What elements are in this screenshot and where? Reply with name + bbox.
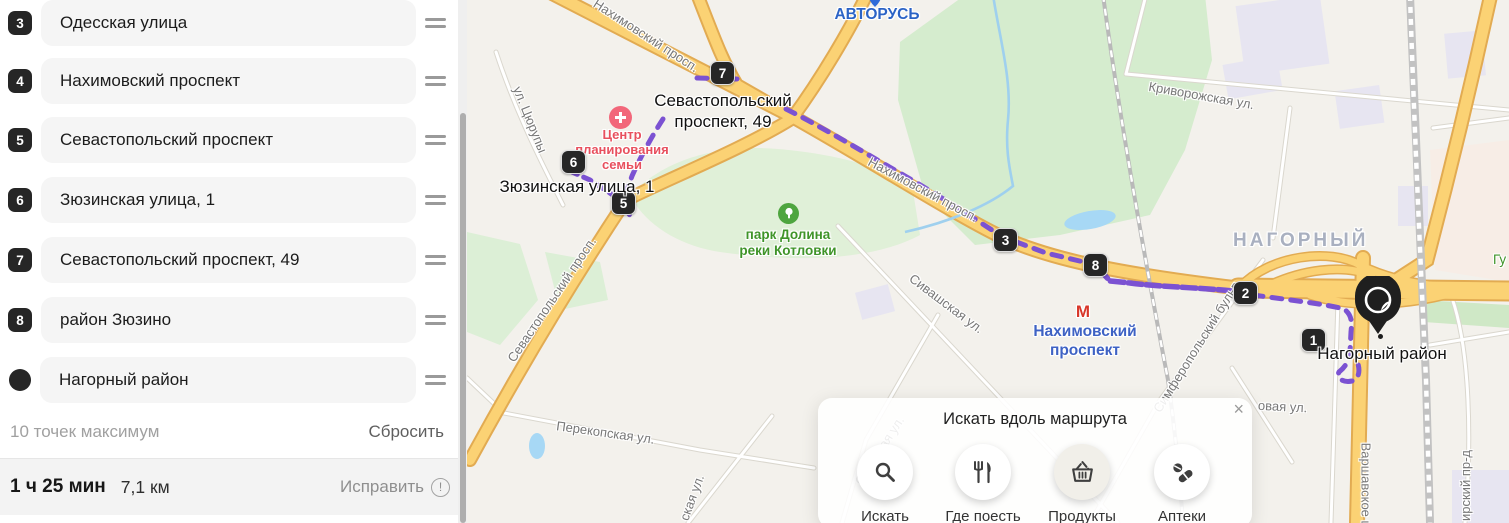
drag-handle-icon[interactable] [425,371,446,390]
destination-dot [1378,334,1383,339]
drag-handle-icon[interactable] [425,14,446,33]
list-footer: 10 точек максимум Сбросить [0,408,452,456]
groceries-action-button[interactable]: Продукты [1034,444,1130,523]
waypoint-input[interactable]: Зюзинская улица, 1 [41,177,416,223]
action-label: Где поесть [935,508,1031,523]
street-label: Варшавское шоссе [1358,443,1373,523]
pills-icon[interactable] [1154,444,1210,500]
waypoint-number-badge: 7 [8,248,32,272]
waypoint-row[interactable]: 8 район Зюзино [0,297,452,343]
map-waypoint-label: Нагорный район [1312,343,1452,364]
route-distance: 7,1 км [121,477,170,498]
search-icon[interactable] [857,444,913,500]
avtorus-label[interactable]: АВТОРУСЬ [827,6,927,24]
route-planner-app: 3 Одесская улица 4 Нахимовский проспект … [0,0,1509,523]
action-label: Аптеки [1134,508,1230,523]
waypoint-input[interactable]: Севастопольский проспект, 49 [41,237,416,283]
waypoint-number-badge: 8 [8,308,32,332]
waypoint-row[interactable]: 7 Севастопольский проспект, 49 [0,237,452,283]
waypoint-number-badge: 5 [8,128,32,152]
map-viewport[interactable]: Нахимовский просп. Нахимовский просп. Кр… [467,0,1509,523]
route-marker-8[interactable]: 8 [1083,253,1108,277]
district-label: НАГОРНЫЙ [1233,230,1368,252]
route-marker-3[interactable]: 3 [993,228,1018,252]
waypoint-input[interactable]: район Зюзино [41,297,416,343]
park-tree-icon[interactable] [778,203,799,224]
waypoint-input[interactable]: Нагорный район [40,357,416,403]
scrollbar-thumb[interactable] [460,113,466,523]
drag-handle-icon[interactable] [425,131,446,150]
medical-center-icon[interactable] [609,106,632,129]
drag-handle-icon[interactable] [425,251,446,270]
food-action-button[interactable]: Где поесть [935,444,1031,523]
basket-icon[interactable] [1054,444,1110,500]
pharmacy-action-button[interactable]: Аптеки [1134,444,1230,523]
waypoint-row[interactable]: 3 Одесская улица [0,0,452,46]
search-action-button[interactable]: Искать [837,444,933,523]
fix-route-label: Исправить [340,477,424,497]
route-summary-bar: 1 ч 25 мин 7,1 км Исправить ! [0,458,458,515]
drag-handle-icon[interactable] [425,72,446,91]
waypoint-row[interactable]: 6 Зюзинская улица, 1 [0,177,452,223]
street-label: овая ул. [1258,398,1308,416]
map-waypoint-label: Зюзинская улица, 1 [492,176,662,197]
waypoint-number-badge: 4 [8,69,32,93]
green-area-label: Гу [1493,252,1506,267]
waypoint-input[interactable]: Нахимовский проспект [41,58,416,104]
max-points-note: 10 точек максимум [10,422,159,442]
info-icon: ! [431,478,450,497]
action-label: Искать [837,508,933,523]
reset-route-button[interactable]: Сбросить [368,422,444,442]
waypoint-input[interactable]: Одесская улица [41,0,416,46]
map-waypoint-label: Севастопольский проспект, 49 [635,90,811,133]
street-label: ирский пр-д [1458,450,1473,521]
waypoint-row-destination[interactable]: Нагорный район [0,357,452,403]
metro-icon[interactable]: М [1073,302,1093,322]
waypoint-number-badge: 6 [8,188,32,212]
waypoint-input[interactable]: Севастопольский проспект [41,117,416,163]
waypoint-list: 3 Одесская улица 4 Нахимовский проспект … [0,0,452,405]
cutlery-icon[interactable] [955,444,1011,500]
fix-route-button[interactable]: Исправить ! [340,477,450,497]
sidebar-scrollbar[interactable] [458,0,467,523]
waypoint-row[interactable]: 5 Севастопольский проспект [0,117,452,163]
search-along-route-panel: × Искать вдоль маршрута Искать [818,398,1252,523]
route-marker-7[interactable]: 7 [710,61,735,85]
panel-title: Искать вдоль маршрута [818,410,1252,429]
route-marker-2[interactable]: 2 [1233,281,1258,305]
metro-station-label[interactable]: Нахимовский проспект [1025,322,1145,361]
park-label: парк Долина реки Котловки [728,227,848,258]
drag-handle-icon[interactable] [425,311,446,330]
waypoint-number-badge: 3 [8,11,32,35]
waypoint-row[interactable]: 4 Нахимовский проспект [0,58,452,104]
route-sidebar: 3 Одесская улица 4 Нахимовский проспект … [0,0,467,523]
destination-dot-badge [9,369,31,391]
destination-balloon-icon[interactable] [1352,276,1404,338]
action-label: Продукты [1034,508,1130,523]
route-marker-6[interactable]: 6 [561,150,586,174]
route-duration: 1 ч 25 мин [10,476,106,498]
drag-handle-icon[interactable] [425,191,446,210]
